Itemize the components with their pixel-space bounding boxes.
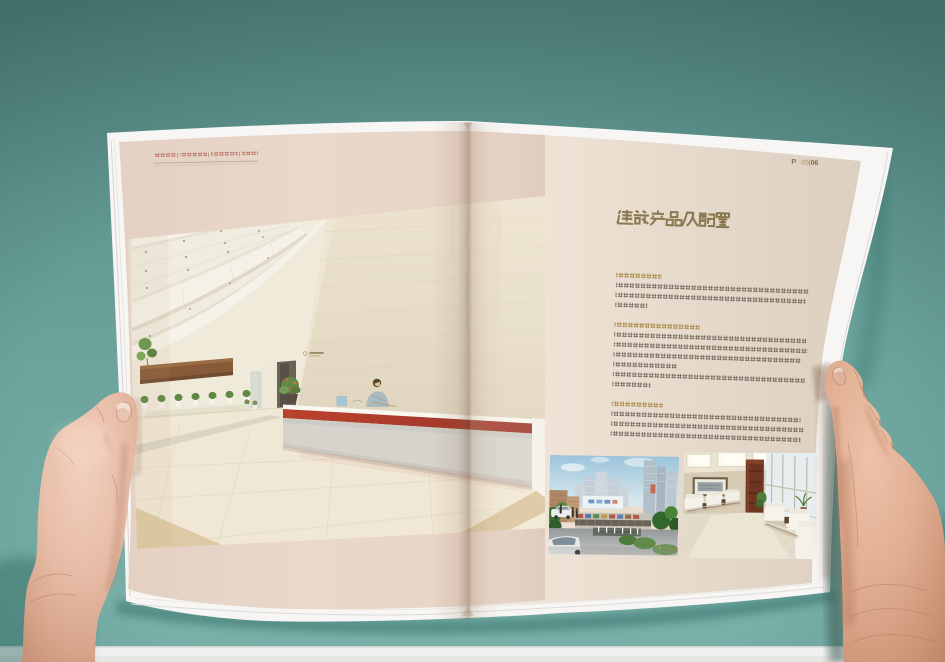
svg-text:P: P — [791, 157, 796, 166]
svg-text:05|06: 05|06 — [801, 159, 818, 167]
